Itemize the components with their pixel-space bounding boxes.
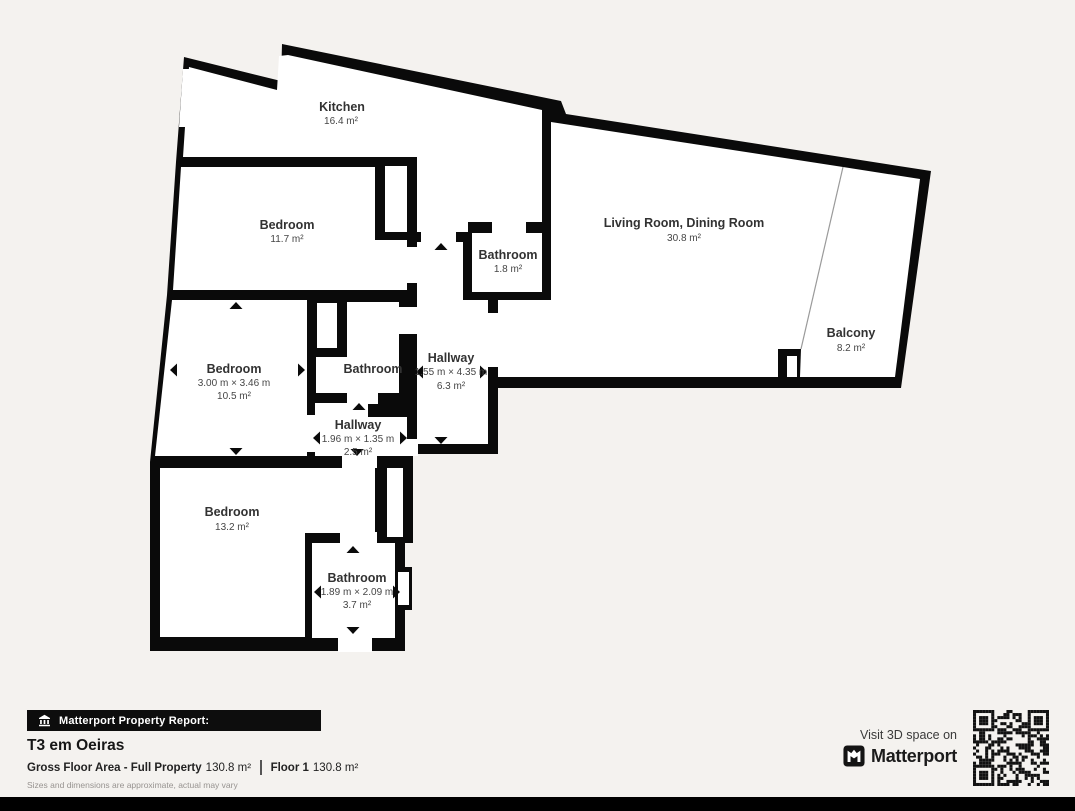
bottom-black-bar [0, 797, 1075, 811]
page-title: T3 em Oeiras [27, 737, 124, 755]
svg-text:Bedroom: Bedroom [260, 218, 315, 232]
svg-text:2.5 m²: 2.5 m² [344, 447, 373, 458]
gfa-value: 130.8 m² [206, 762, 251, 774]
svg-text:Bathroom: Bathroom [343, 362, 402, 376]
building-icon [38, 714, 51, 727]
svg-text:Hallway: Hallway [335, 418, 382, 432]
closet-void [385, 166, 407, 232]
svg-text:Kitchen: Kitchen [319, 100, 365, 114]
floor-plan: Kitchen 16.4 m² Bedroom 11.7 m² Living R… [0, 0, 1075, 811]
svg-text:6.3 m²: 6.3 m² [437, 381, 466, 392]
matterport-logo[interactable]: Matterport [843, 745, 957, 767]
svg-text:Bathroom: Bathroom [478, 248, 537, 262]
floor-label: Floor 1 [271, 762, 309, 774]
svg-text:11.7 m²: 11.7 m² [270, 234, 304, 245]
svg-text:1.55 m × 4.35 m: 1.55 m × 4.35 m [415, 367, 488, 378]
svg-text:Living Room, Dining Room: Living Room, Dining Room [604, 216, 764, 230]
wall-stub [368, 403, 416, 417]
svg-text:3.00 m × 3.46 m: 3.00 m × 3.46 m [198, 378, 271, 389]
svg-text:Bedroom: Bedroom [205, 505, 260, 519]
duct-void [317, 303, 337, 348]
property-report-page: Kitchen 16.4 m² Bedroom 11.7 m² Living R… [0, 0, 1075, 811]
report-badge-label: Matterport Property Report: [59, 715, 209, 727]
svg-text:1.96 m × 1.35 m: 1.96 m × 1.35 m [322, 434, 395, 445]
svg-text:1.8 m²: 1.8 m² [494, 264, 523, 275]
matterport-wordmark: Matterport [871, 746, 957, 767]
svg-text:30.8 m²: 30.8 m² [667, 233, 702, 244]
room-label-bathroom-middle: Bathroom [343, 362, 402, 376]
shaft-void [387, 468, 403, 537]
matterport-m-icon [843, 745, 865, 767]
svg-text:10.5 m²: 10.5 m² [217, 391, 252, 402]
gfa-label: Gross Floor Area - Full Property [27, 762, 202, 774]
svg-text:13.2 m²: 13.2 m² [215, 522, 250, 533]
svg-text:1.89 m × 2.09 m: 1.89 m × 2.09 m [321, 587, 394, 598]
svg-text:Bathroom: Bathroom [327, 571, 386, 585]
room-bathroom-service-floor [472, 233, 542, 292]
svg-text:Bedroom: Bedroom [207, 362, 262, 376]
svg-text:16.4 m²: 16.4 m² [324, 116, 359, 127]
svg-text:Hallway: Hallway [428, 351, 475, 365]
svg-text:3.7 m²: 3.7 m² [343, 600, 372, 611]
visit-3d-label: Visit 3D space on [860, 728, 957, 742]
qr-code[interactable] [973, 710, 1049, 786]
svg-text:Balcony: Balcony [827, 326, 876, 340]
floor-value: 130.8 m² [313, 762, 358, 774]
disclaimer-text: Sizes and dimensions are approximate, ac… [27, 780, 238, 790]
report-badge-bar: Matterport Property Report: [27, 710, 321, 731]
svg-text:8.2 m²: 8.2 m² [837, 343, 866, 354]
metrics-divider [260, 760, 262, 775]
area-metrics: Gross Floor Area - Full Property 130.8 m… [27, 760, 358, 775]
visit-3d-cta: Visit 3D space on Matterport [843, 728, 957, 767]
